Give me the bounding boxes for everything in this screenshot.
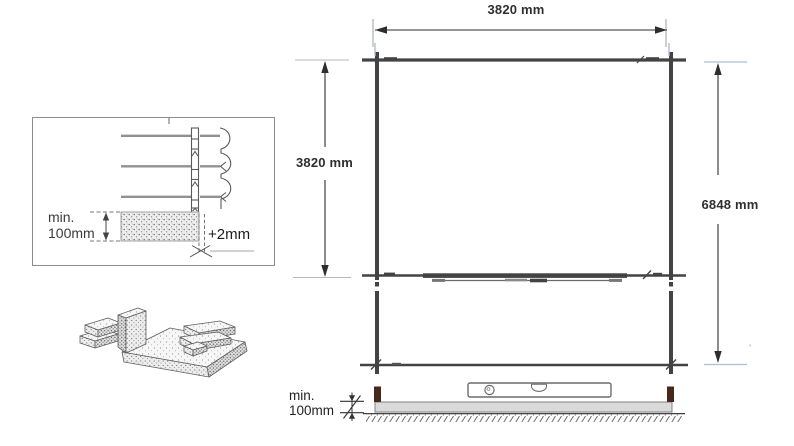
- detail-gap-tolerance-label: +2mm: [208, 226, 250, 243]
- plan-depth-label: 3820 mm: [296, 155, 352, 170]
- stacked-bricks-left: [80, 318, 121, 348]
- corner-post-left: [374, 387, 381, 403]
- log-end-profile: [220, 128, 231, 209]
- detail-min-line2: 100mm: [48, 225, 95, 241]
- plan-width-label: 3820 mm: [483, 2, 549, 17]
- plan-frame-details: [371, 56, 676, 370]
- foundation-strip: [121, 212, 199, 241]
- upright-slab: [118, 308, 146, 353]
- corner-post-right: [667, 387, 674, 403]
- wall-boards: [121, 136, 220, 197]
- assembly-instructions-diagram: min. 100mm +2mm: [0, 0, 794, 446]
- detail-min-line1: min.: [48, 209, 95, 225]
- corner-post: [192, 128, 199, 214]
- foundation-min-height-label: min. 100mm: [289, 388, 334, 418]
- wall-base-detail-panel: min. 100mm +2mm: [32, 117, 275, 266]
- foundation-slab: [375, 402, 672, 412]
- foundation-min-line2: 100mm: [289, 403, 334, 418]
- spirit-level-illustration: [468, 383, 611, 397]
- min-height-bracket: [340, 393, 364, 422]
- floor-plan-drawing: [280, 0, 794, 446]
- total-depth-dimension: [704, 62, 751, 365]
- foundation-blocks-illustration: [63, 292, 268, 397]
- sketch-shapes: [80, 308, 247, 377]
- foundation-side-view: [340, 383, 685, 422]
- plan-frame: [360, 52, 688, 374]
- plan-total-depth-label: 6848 mm: [700, 197, 760, 212]
- foundation-min-line1: min.: [289, 388, 334, 403]
- ground-hatching: [366, 415, 682, 423]
- detail-min-height-label: min. 100mm: [48, 209, 95, 241]
- width-dimension: [373, 19, 669, 56]
